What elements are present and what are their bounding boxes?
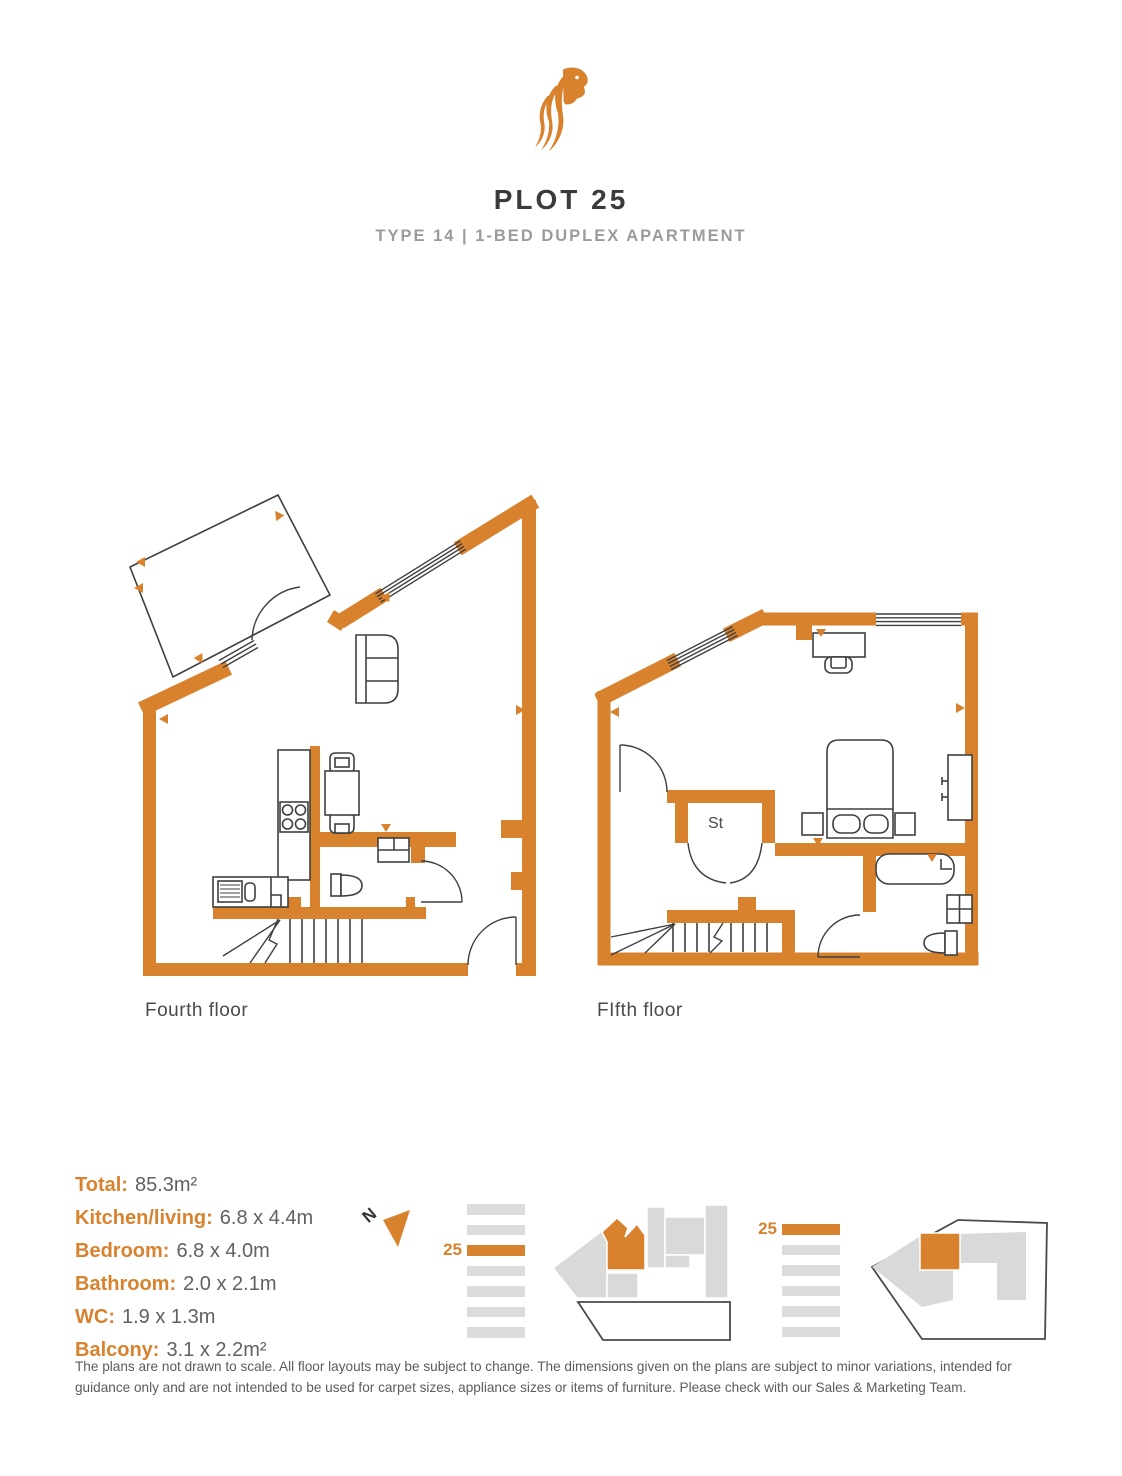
floor-stack-side: 25 [751, 1224, 840, 1347]
fourth-floor-label: Fourth floor [145, 1000, 248, 1022]
dining-table [325, 753, 359, 833]
wc-toilet [331, 874, 362, 896]
storage-label: St [708, 815, 724, 832]
stairs [223, 919, 362, 963]
site-plan-1 [550, 1195, 750, 1355]
bathroom-basin [947, 895, 972, 923]
plot-25-highlight [920, 1233, 960, 1270]
floorplan-page: PLOT 25 TYPE 14 | 1-BED DUPLEX APARTMENT [0, 0, 1122, 1476]
detail-label: WC: [75, 1306, 115, 1328]
plot-25-highlight [602, 1218, 645, 1270]
detail-value: 1.9 x 1.3m [122, 1306, 215, 1328]
floor-stack-front: 25 [436, 1204, 525, 1348]
detail-label: Kitchen/living: [75, 1207, 213, 1229]
stack-plot-label: 25 [436, 1240, 462, 1260]
stack-row [436, 1307, 525, 1318]
stack-bar-highlighted [782, 1224, 840, 1235]
detail-value: 2.0 x 2.1m [183, 1273, 276, 1295]
stack-bar [467, 1266, 525, 1277]
lion-logo-icon [527, 64, 595, 172]
bedside-table [802, 813, 823, 835]
stack-row: 25 [436, 1245, 525, 1256]
stack-bar [467, 1225, 525, 1236]
sofa [356, 635, 398, 703]
stack-bar [467, 1327, 525, 1338]
north-label: N [359, 1204, 381, 1226]
bathroom-toilet [924, 931, 957, 955]
disclaimer-text: The plans are not drawn to scale. All fl… [75, 1356, 1060, 1398]
stack-bar-highlighted [467, 1245, 525, 1256]
site-plan-2 [863, 1195, 1063, 1355]
window-glazing [219, 541, 466, 668]
appliances [213, 877, 288, 907]
stack-row [751, 1245, 840, 1256]
dimensions-list: Total:85.3m²Kitchen/living:6.8 x 4.4mBed… [75, 1169, 313, 1367]
stack-row [751, 1306, 840, 1317]
detail-row: WC:1.9 x 1.3m [75, 1301, 313, 1334]
stack-row [751, 1327, 840, 1338]
detail-row: Bathroom:2.0 x 2.1m [75, 1268, 313, 1301]
stack-bar [782, 1306, 840, 1317]
north-arrow-icon: N [355, 1195, 415, 1260]
stack-bar [782, 1327, 840, 1338]
kitchen-counter [278, 750, 310, 880]
fifth-floor-plan: St [595, 585, 995, 980]
detail-row: Total:85.3m² [75, 1169, 313, 1202]
detail-value: 6.8 x 4.0m [176, 1240, 269, 1262]
detail-row: Kitchen/living:6.8 x 4.4m [75, 1202, 313, 1235]
stairs [611, 923, 767, 955]
detail-label: Bathroom: [75, 1273, 176, 1295]
wc-basin [378, 838, 409, 862]
detail-label: Total: [75, 1174, 128, 1196]
detail-label: Bedroom: [75, 1240, 169, 1262]
page-title: PLOT 25 [0, 184, 1122, 216]
fifth-floor-label: FIfth floor [597, 1000, 683, 1022]
stack-row [751, 1286, 840, 1297]
stack-row [436, 1286, 525, 1297]
balcony [130, 495, 330, 677]
desk [813, 633, 865, 673]
stack-plot-label: 25 [751, 1219, 777, 1239]
stack-row [436, 1266, 525, 1277]
site-road-outline [578, 1302, 730, 1340]
stack-bar [782, 1245, 840, 1256]
stack-row [436, 1204, 525, 1215]
diagonal-walls [148, 505, 529, 706]
stack-bar [467, 1286, 525, 1297]
detail-value: 85.3m² [135, 1174, 197, 1196]
stack-bar [782, 1286, 840, 1297]
fourth-floor-plan [128, 488, 558, 1008]
stack-bar [467, 1307, 525, 1318]
bed [827, 740, 893, 838]
bath [876, 854, 954, 884]
detail-value: 6.8 x 4.4m [220, 1207, 313, 1229]
stack-row: 25 [751, 1224, 840, 1235]
stack-row [436, 1225, 525, 1236]
dimension-arrows [134, 508, 525, 909]
stack-row [436, 1327, 525, 1338]
stack-row [751, 1265, 840, 1276]
bedside-table [895, 813, 915, 835]
wardrobe [942, 755, 972, 820]
detail-row: Bedroom:6.8 x 4.0m [75, 1235, 313, 1268]
stack-bar [467, 1204, 525, 1215]
page-subtitle: TYPE 14 | 1-BED DUPLEX APARTMENT [0, 227, 1122, 246]
stack-bar [782, 1265, 840, 1276]
diagonal-walls [604, 619, 759, 697]
walls [143, 500, 536, 976]
